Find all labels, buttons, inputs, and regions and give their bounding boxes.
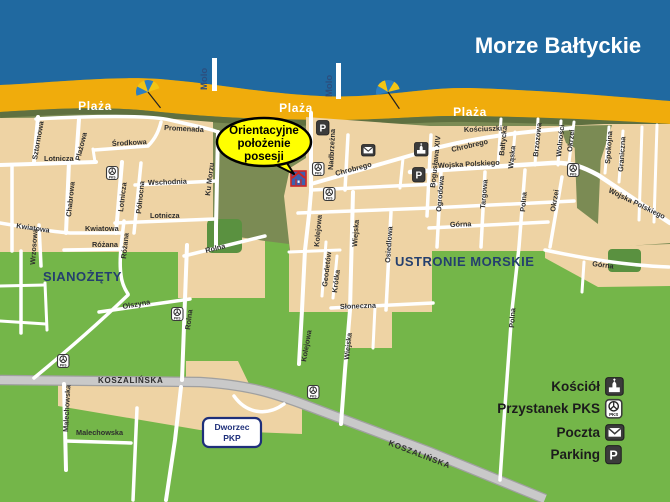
church-icon: [415, 143, 429, 157]
street-vertical-375: [373, 307, 375, 348]
pks-icon: [308, 386, 320, 399]
street-label-srodkowa: Środkowa: [112, 137, 148, 148]
parking-icon: [606, 446, 622, 464]
street-label-polna-2: Polna: [507, 307, 517, 328]
molo-label-west: Molo: [199, 68, 210, 90]
street-below-gorna: [582, 262, 584, 292]
legend-label-parking: Parking: [550, 447, 600, 462]
street-label-polna-1: Polna: [518, 191, 529, 213]
pks-icon: [313, 163, 325, 176]
station-line-1: Dworzec: [215, 422, 250, 432]
pks-icon: [58, 355, 70, 368]
street-label-lotnicza-1: Lotnicza: [44, 154, 75, 163]
ustronie-morskie-map: PKS P: [0, 0, 670, 502]
town-label-sianozety: SIANOŻĘTY: [43, 269, 122, 284]
church-icon: [606, 378, 624, 396]
street-label-sloneczna: Słoneczna: [340, 301, 377, 311]
street-nadbrzezna: [309, 113, 311, 215]
street-malechowska: [66, 441, 131, 443]
pks-icon: [324, 188, 336, 201]
callout-line-3: posesji: [244, 151, 284, 163]
parking-icon: [413, 168, 426, 183]
mail-icon: [606, 425, 624, 441]
street-label-kosciuszki: Kościuszki: [464, 124, 502, 134]
pks-icon: [568, 164, 580, 177]
callout-line-2: położenie: [237, 138, 290, 150]
street-sianozety-3: [45, 283, 47, 330]
station-line-2: PKP: [223, 433, 241, 443]
pks-icon: [107, 167, 119, 180]
molo-pier-west: [212, 58, 217, 91]
street-label-rozana-1: Różana: [92, 240, 119, 249]
pks-icon: [606, 400, 622, 418]
street-label-gorna-1: Górna: [450, 219, 473, 229]
callout-line-1: Orientacyjne: [229, 125, 299, 137]
beach-label-west: Plaża: [78, 99, 112, 113]
street-label-malechowska-2: Malechowska: [76, 428, 124, 437]
beach-label-east: Plaża: [453, 105, 487, 119]
legend-label-pks: Przystanek PKS: [497, 401, 600, 416]
legend-label-church: Kościół: [551, 379, 600, 394]
station-box: Dworzec PKP: [203, 418, 261, 447]
road-label-koszalinska-1: KOSZALIŃSKA: [98, 376, 163, 385]
pks-icon: [172, 308, 184, 321]
street-rozana: [64, 249, 123, 250]
beach-label-center: Plaża: [279, 101, 313, 115]
parking-icon: [317, 121, 330, 136]
street-connector-2: [289, 250, 340, 252]
legend-label-post: Poczta: [556, 425, 600, 440]
town-label-ustronie-morskie: USTRONIE MORSKIE: [395, 254, 534, 269]
street-connector-1: [93, 149, 95, 162]
molo-pier-east: [336, 63, 341, 99]
mail-icon: [362, 145, 376, 157]
sea-title: Morze Bałtyckie: [475, 33, 641, 58]
street-label-kwiatowa-2: Kwiatowa: [85, 224, 120, 233]
street-sianozety-4: [0, 285, 45, 286]
molo-label-east: Molo: [324, 75, 335, 97]
street-label-lotnicza-3: Lotnicza: [150, 211, 181, 220]
street-label-wschodnia: Wschodnia: [148, 177, 188, 187]
